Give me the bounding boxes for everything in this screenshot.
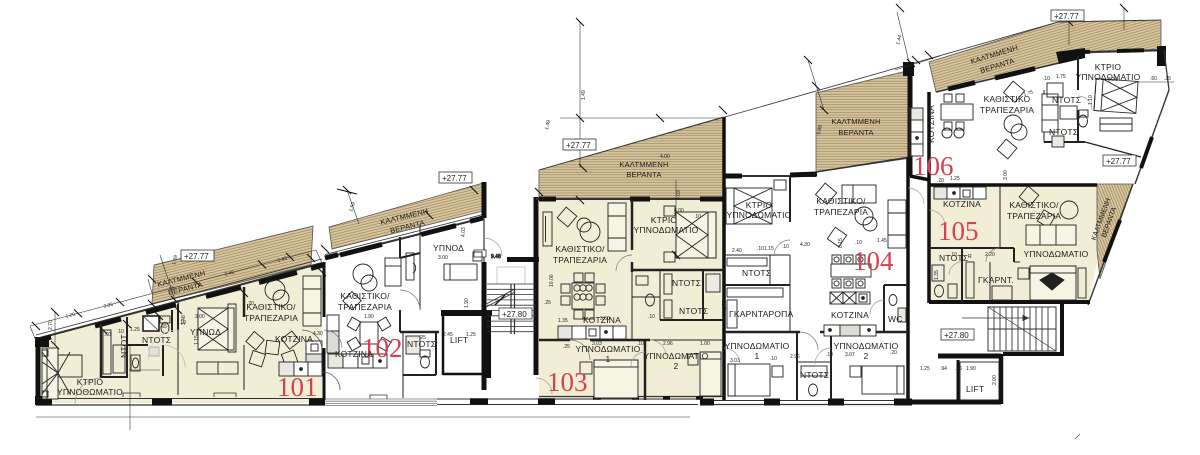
svg-text:.65: .65 [160, 324, 167, 330]
svg-text:ΚΑΘΙΣΤΙΚΟ/: ΚΑΘΙΣΤΙΚΟ/ [555, 244, 605, 254]
svg-text:.25: .25 [544, 300, 551, 306]
svg-text:ΝΤΟΤΣ: ΝΤΟΤΣ [800, 370, 829, 380]
svg-text:+27.80: +27.80 [944, 331, 969, 340]
svg-text:1.90: 1.90 [464, 298, 470, 308]
svg-text:105: 105 [938, 216, 979, 246]
svg-text:.10: .10 [694, 214, 701, 220]
svg-text:ΚΟΤΖΙΝΑ: ΚΟΤΖΙΝΑ [583, 315, 621, 325]
svg-text:.10: .10 [770, 356, 777, 362]
svg-text:ΚΤΡΙΟ: ΚΤΡΙΟ [746, 200, 773, 210]
svg-text:2: 2 [864, 351, 869, 361]
svg-text:1.49: 1.49 [581, 90, 587, 100]
svg-text:1.25: 1.25 [920, 366, 930, 372]
svg-text:ΚΤΡΙΟ: ΚΤΡΙΟ [651, 215, 678, 225]
svg-text:4.00: 4.00 [674, 208, 684, 214]
svg-text:4.03: 4.03 [676, 190, 682, 200]
svg-text:ΚΟΤΖΙΝΑ: ΚΟΤΖΙΝΑ [943, 199, 981, 209]
svg-text:4.03: 4.03 [461, 227, 467, 237]
svg-text:LIFT: LIFT [450, 335, 468, 345]
svg-text:2.96: 2.96 [663, 341, 673, 347]
svg-text:ΚΑΘΙΣΤΙΚΟ: ΚΑΘΙΣΤΙΚΟ [984, 94, 1031, 104]
svg-text:ΤΡΑΠΕΖΑΡΙΑ: ΤΡΑΠΕΖΑΡΙΑ [980, 105, 1034, 115]
svg-text:1.15: 1.15 [764, 246, 774, 252]
svg-text:3.48: 3.48 [181, 315, 187, 325]
svg-text:ΤΡΑΠΕΖΑΡΙΑ: ΤΡΑΠΕΖΑΡΙΑ [1007, 211, 1061, 221]
svg-text:3.00: 3.00 [1003, 170, 1009, 180]
svg-text:+27.77: +27.77 [442, 174, 467, 183]
svg-text:10.00: 10.00 [549, 274, 555, 287]
svg-text:4.30: 4.30 [313, 331, 323, 337]
svg-text:ΓΚΑΡΝΤ.: ΓΚΑΡΝΤ. [978, 275, 1014, 285]
svg-text:.25: .25 [955, 366, 962, 372]
svg-text:ΚΤΡΙΟ: ΚΤΡΙΟ [77, 377, 104, 387]
svg-text:ΥΠΝΟΔ: ΥΠΝΟΔ [433, 243, 464, 253]
svg-text:1: 1 [755, 351, 760, 361]
svg-text:1.00: 1.00 [700, 341, 710, 347]
svg-text:ΥΠΝΟΔΩΜΑΤΙΟ: ΥΠΝΟΔΩΜΑΤΙΟ [834, 341, 899, 351]
svg-text:.60: .60 [104, 332, 111, 338]
svg-text:1.90: 1.90 [966, 366, 976, 372]
svg-text:ΥΠΝΟΔΩΜΑΤΙΟ: ΥΠΝΟΔΩΜΑΤΙΟ [727, 210, 792, 220]
svg-text:2.20: 2.20 [985, 252, 995, 258]
svg-text:ΝΤΟΤ: ΝΤΟΤ [119, 334, 129, 358]
svg-text:ΚΟΤΖΙΝΑ: ΚΟΤΖΙΝΑ [926, 105, 936, 143]
svg-text:ΝΤΟΤΣ: ΝΤΟΤΣ [672, 278, 701, 288]
svg-text:ΤΡΑΠΕΖΑΡΙΑ: ΤΡΑΠΕΖΑΡΙΑ [814, 207, 868, 217]
svg-text:3.07: 3.07 [845, 352, 855, 358]
svg-text:+27.80: +27.80 [502, 310, 527, 319]
svg-text:.10: .10 [117, 329, 124, 335]
svg-text:ΝΤΟΤΣ: ΝΤΟΤΣ [939, 253, 968, 263]
svg-text:ΝΤΟΤΣ: ΝΤΟΤΣ [679, 306, 708, 316]
svg-text:2.00: 2.00 [992, 375, 998, 385]
svg-text:1: 1 [606, 354, 611, 364]
svg-text:ΤΡΑΠΕΖΑΡΙΑ: ΤΡΑΠΕΖΑΡΙΑ [244, 313, 298, 323]
svg-text:2: 2 [674, 361, 679, 371]
svg-text:104: 104 [853, 246, 894, 276]
svg-text:3.03: 3.03 [730, 358, 740, 364]
svg-text:R: R [968, 254, 972, 260]
svg-text:ΝΤΟΤΣ: ΝΤΟΤΣ [1049, 127, 1078, 137]
svg-text:.10: .10 [648, 314, 655, 320]
svg-text:ΥΠΝΟΔΩΜΑΤΙΟ: ΥΠΝΟΔΩΜΑΤΙΟ [725, 341, 790, 351]
svg-text:.10: .10 [782, 244, 789, 250]
svg-text:4.00: 4.00 [660, 154, 670, 160]
svg-text:ΝΤΟΤΣ: ΝΤΟΤΣ [142, 335, 171, 345]
svg-text:ΚΑΘΙΣΤΙΚΟ/: ΚΑΘΙΣΤΙΚΟ/ [340, 291, 390, 301]
svg-text:ΓΚΑΡΝΤΑΡΟΠΑ: ΓΚΑΡΝΤΑΡΟΠΑ [729, 309, 793, 319]
svg-text:ΚΟΤΖΙΝΑ: ΚΟΤΖΙΝΑ [335, 349, 373, 359]
svg-text:ΝΤΟΤΣ: ΝΤΟΤΣ [742, 268, 771, 278]
svg-text:ΒΕΡΑΝΤΑ: ΒΕΡΑΝΤΑ [838, 128, 873, 137]
svg-text:ΥΠΝΟΔΩΜΑΤΙΟ: ΥΠΝΟΔΩΜΑΤΙΟ [644, 351, 709, 361]
svg-text:2.40: 2.40 [732, 248, 742, 254]
svg-text:3.00: 3.00 [195, 314, 205, 320]
svg-text:+27.77: +27.77 [566, 141, 591, 150]
svg-text:1.90: 1.90 [364, 314, 374, 320]
svg-text:WC: WC [888, 314, 903, 324]
svg-text:ΚΑΘΙΣΤΙΚΟ/: ΚΑΘΙΣΤΙΚΟ/ [246, 302, 296, 312]
svg-text:2.96: 2.96 [790, 354, 800, 360]
svg-text:ΥΠΝΩΔ: ΥΠΝΩΔ [190, 327, 221, 337]
svg-text:101: 101 [277, 372, 318, 402]
svg-text:ΚΑΛΤΜΜΕΝΗ: ΚΑΛΤΜΜΕΝΗ [619, 160, 668, 169]
svg-text:106: 106 [913, 151, 954, 181]
svg-text:3.00: 3.00 [438, 255, 448, 261]
svg-text:103: 103 [547, 367, 588, 397]
svg-text:ΝΤΟΤΣ: ΝΤΟΤΣ [1052, 95, 1081, 105]
svg-text:.10: .10 [826, 352, 833, 358]
svg-text:.60: .60 [1150, 76, 1157, 82]
svg-text:ΚΟΤΖΙΝΑ: ΚΟΤΖΙΝΑ [275, 334, 313, 344]
svg-text:1.25: 1.25 [130, 327, 140, 333]
svg-text:ΥΠΝΟΔΩΜΑΤΙΟ: ΥΠΝΟΔΩΜΑΤΙΟ [1076, 72, 1141, 82]
svg-text:ΚΤΡΙΟ: ΚΤΡΙΟ [1095, 62, 1122, 72]
svg-text:1.45: 1.45 [877, 238, 887, 244]
svg-text:ΚΑΘΙΣΤΙΚΟ/: ΚΑΘΙΣΤΙΚΟ/ [1009, 200, 1059, 210]
svg-text:1.35: 1.35 [558, 318, 568, 324]
svg-text:ΚΟΤΖΙΝΑ: ΚΟΤΖΙΝΑ [831, 310, 869, 320]
svg-text:1.35: 1.35 [934, 270, 940, 280]
svg-text:1.75: 1.75 [722, 300, 728, 310]
svg-text:9.48: 9.48 [491, 254, 501, 260]
svg-text:ΥΠΝΟΔΩΜΑΤΙΟ: ΥΠΝΟΔΩΜΑΤΙΟ [634, 225, 699, 235]
svg-text:+27.77: +27.77 [184, 252, 209, 261]
svg-text:LIFT: LIFT [966, 384, 984, 394]
svg-text:ΒΕΡΑΝΤΑ: ΒΕΡΑΝΤΑ [626, 170, 661, 179]
svg-text:ΚΑΘΙΣΤΙΚΟ/: ΚΑΘΙΣΤΙΚΟ/ [816, 196, 866, 206]
svg-text:ΥΠΝΟΔΩΜΑΤΙΟ: ΥΠΝΟΔΩΜΑΤΙΟ [576, 344, 641, 354]
svg-text:2.70: 2.70 [48, 320, 54, 330]
svg-text:.25: .25 [1164, 76, 1171, 82]
svg-text:.10: .10 [1043, 76, 1050, 82]
svg-text:1.10: 1.10 [1088, 95, 1094, 105]
svg-text:4.30: 4.30 [800, 242, 810, 248]
svg-text:.94: .94 [940, 366, 947, 372]
svg-text:ΤΡΑΠΕΖΑΡΙΑ: ΤΡΑΠΕΖΑΡΙΑ [553, 255, 607, 265]
svg-text:ΝΤΟΤΣ: ΝΤΟΤΣ [407, 339, 436, 349]
svg-text:+27.77: +27.77 [1054, 12, 1079, 21]
svg-text:ΚΑΛΤΜΜΕΝΗ: ΚΑΛΤΜΜΕΝΗ [831, 117, 880, 126]
svg-text:1.75: 1.75 [1056, 74, 1066, 80]
svg-text:+27.77: +27.77 [1106, 157, 1131, 166]
svg-text:ΤΡΑΠΕΖΑΡΙΑ: ΤΡΑΠΕΖΑΡΙΑ [338, 302, 392, 312]
svg-text:8.15: 8.15 [838, 238, 844, 248]
svg-text:.25: .25 [563, 344, 570, 350]
svg-text:ΥΠΝΟΔΩΜΑΤΙΟ: ΥΠΝΟΔΩΜΑΤΙΟ [1024, 249, 1089, 259]
svg-text:ΥΠΝΟΘΩΜΑΤΙΟ: ΥΠΝΟΘΩΜΑΤΙΟ [57, 387, 123, 397]
